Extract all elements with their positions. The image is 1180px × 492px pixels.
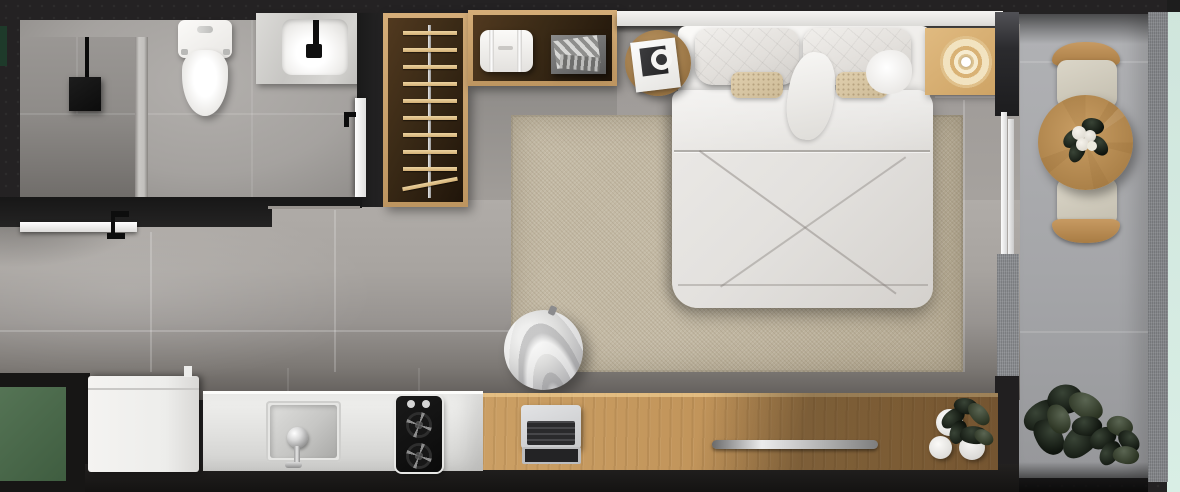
toilet-hinge xyxy=(181,49,188,55)
laundry-hamper-ridge xyxy=(489,30,494,72)
headphones xyxy=(651,49,672,70)
floor-tile-line xyxy=(935,96,997,98)
refrigerator-top-seam xyxy=(88,388,199,390)
pillow-accent-left xyxy=(731,72,783,98)
duvet-crease xyxy=(699,150,897,294)
doormat xyxy=(0,387,66,481)
balcony-ledge xyxy=(1148,12,1168,482)
balcony-plant-small xyxy=(1089,416,1145,472)
sink-faucet-handle xyxy=(285,462,302,468)
sliding-door-frame xyxy=(1001,112,1007,258)
kitchen-counter-edge xyxy=(203,391,483,394)
top-wall-cap xyxy=(1167,0,1180,12)
floor-tile-line xyxy=(963,100,965,372)
hanger xyxy=(403,82,457,86)
sliding-door-frame xyxy=(1008,119,1014,260)
entrance-door-handle-stem xyxy=(111,214,115,235)
floor-tile-line xyxy=(0,330,511,332)
laundry-hamper-handle xyxy=(498,46,513,50)
headboard-shelf xyxy=(617,11,1003,26)
hanger xyxy=(403,99,457,103)
hanger xyxy=(403,116,457,120)
table-centerpiece xyxy=(1060,116,1110,166)
floor-plan xyxy=(0,0,1180,492)
flower xyxy=(1087,141,1097,151)
stove-burner xyxy=(406,412,432,438)
bathroom-tile-line xyxy=(251,20,253,198)
shower-column xyxy=(85,37,89,80)
refrigerator-hinge xyxy=(184,366,192,377)
desk-groove xyxy=(712,440,878,449)
kitchen-tile-line xyxy=(418,368,420,392)
laundry-hamper xyxy=(480,30,533,72)
shower-fixture xyxy=(69,77,101,111)
floor-tile-line xyxy=(334,210,336,372)
toilet-flush-button xyxy=(197,26,213,33)
shower-area xyxy=(20,37,137,200)
hanger xyxy=(403,167,457,171)
duvet-crease xyxy=(720,156,906,287)
hanger xyxy=(403,133,457,137)
rattan-tray-center xyxy=(961,57,971,67)
desk-plant xyxy=(938,398,996,456)
bathroom-door-handle xyxy=(344,117,349,127)
shower-divider-wall xyxy=(135,37,148,200)
laptop-keyboard xyxy=(527,421,575,445)
bed-sheet-fold xyxy=(866,50,912,94)
vanity-faucet-base xyxy=(306,44,322,58)
wardrobe-tall-interior xyxy=(388,18,463,202)
sink-faucet xyxy=(287,427,308,448)
duvet-bottom-crease xyxy=(678,284,928,286)
bathroom-tile-line xyxy=(20,113,360,115)
stove-knob xyxy=(422,400,430,408)
laundry-hamper-ridge xyxy=(517,30,522,72)
laptop-screen-panel xyxy=(525,449,578,462)
bathroom-door xyxy=(355,98,366,197)
hanger xyxy=(403,48,457,52)
exterior-green-sliver xyxy=(0,26,7,66)
balcony-top-shadow xyxy=(1019,14,1148,44)
doorway-threshold xyxy=(268,206,360,209)
duvet-fold-line xyxy=(674,150,930,152)
stove-knob xyxy=(407,400,415,408)
balcony-tile-line xyxy=(1019,331,1148,333)
entrance-door xyxy=(20,222,137,232)
hanger xyxy=(403,65,457,69)
kitchen-tile-line xyxy=(287,368,289,392)
entrance-door-handle xyxy=(107,233,125,239)
floor-tile-line xyxy=(150,232,152,372)
toilet-hinge xyxy=(223,49,230,55)
balcony-glass-panel xyxy=(997,254,1019,380)
hanger xyxy=(403,31,457,35)
exterior-mint-strip xyxy=(1167,0,1180,492)
refrigerator xyxy=(88,376,199,472)
hanger xyxy=(403,150,457,154)
stove-burner xyxy=(406,443,432,469)
balcony-wall-block xyxy=(995,12,1019,116)
